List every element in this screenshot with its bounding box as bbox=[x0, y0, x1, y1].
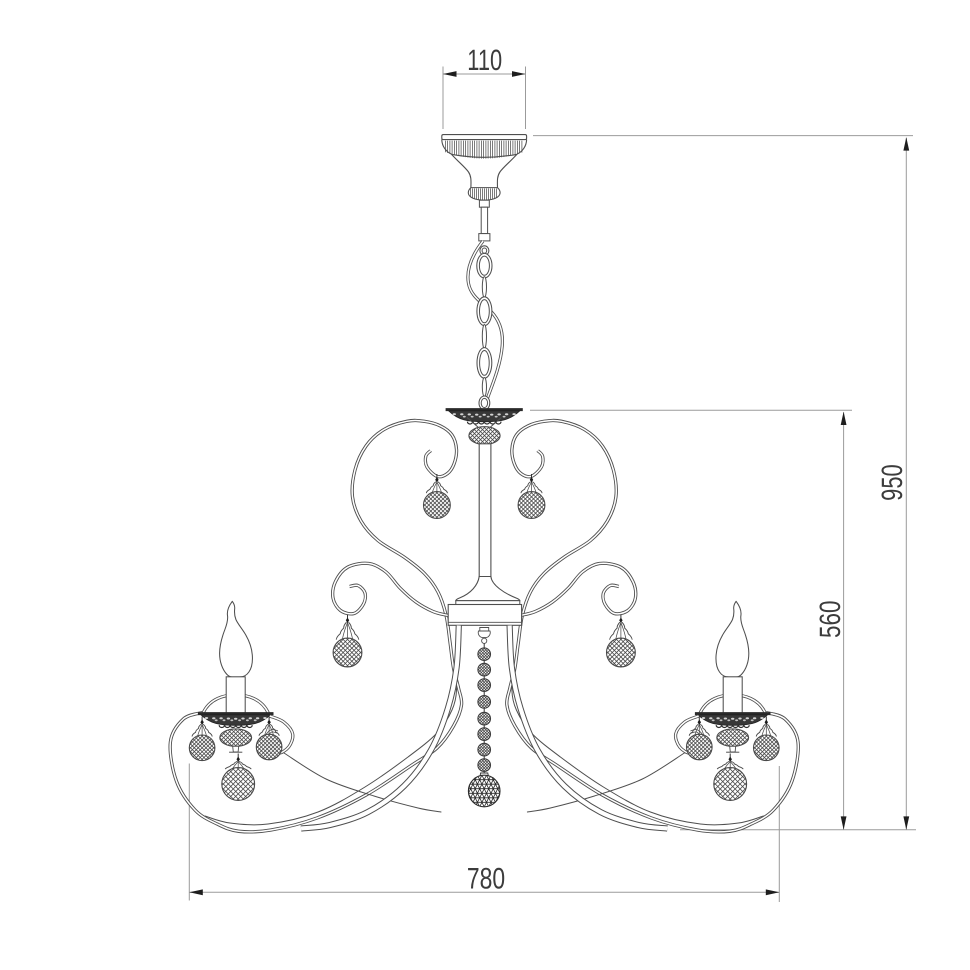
svg-text:560: 560 bbox=[814, 601, 847, 639]
svg-text:110: 110 bbox=[467, 44, 502, 77]
svg-text:950: 950 bbox=[876, 464, 909, 501]
svg-text:780: 780 bbox=[467, 863, 505, 896]
